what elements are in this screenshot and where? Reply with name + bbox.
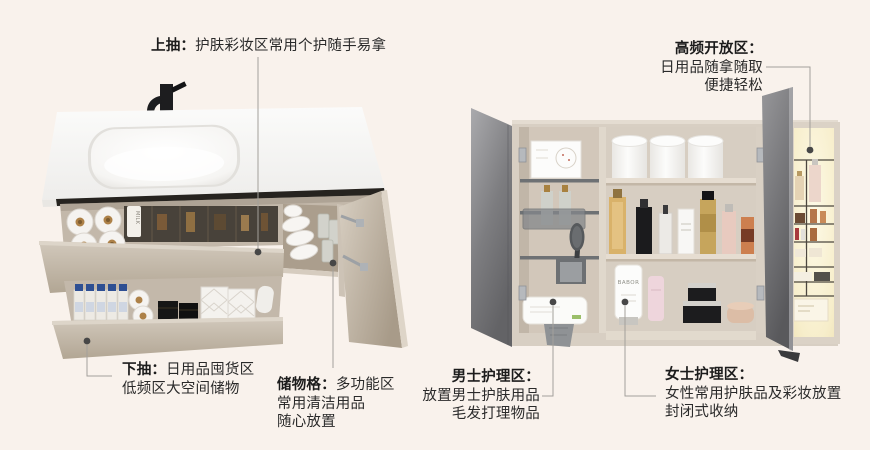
callout-storage-grid-label: 储物格： (277, 377, 336, 393)
babor-brand-label: BABOR (618, 280, 640, 286)
towel-holder (556, 258, 586, 284)
open-niche (788, 122, 840, 344)
callout-top-drawer-desc: 护肤彩妆区常用个护随手易拿 (195, 38, 386, 54)
milk-bottle-label: MILK (134, 211, 140, 225)
callout-top-drawer-label: 上抽： (151, 38, 195, 54)
dot-mens-zone (550, 299, 557, 306)
black-jars (683, 283, 721, 323)
callout-bottom-drawer-desc: 日用品囤货区 (166, 362, 254, 378)
cosmetic-organizers: MILK (124, 206, 278, 242)
womens-section: BABOR (606, 127, 756, 340)
tissue-boxes (201, 287, 255, 322)
callout-open-zone: 高频开放区： 日用品随拿随取 便捷轻松 (660, 40, 763, 96)
callout-storage-grid-line3: 随心放置 (277, 413, 395, 432)
callout-womens-zone-label: 女士护理区： (665, 366, 841, 385)
callout-mens-zone-label: 男士护理区： (422, 368, 540, 387)
callout-storage-grid: 储物格：多功能区 常用清洁用品 随心放置 (277, 376, 395, 432)
left-mirror-door (471, 108, 512, 347)
callout-mens-zone-line2: 毛发打理物品 (422, 405, 540, 424)
detergent-bottles (74, 284, 128, 320)
callout-womens-zone-line2: 封闭式收纳 (665, 403, 841, 422)
callout-womens-zone: 女士护理区： 女性常用护肤品及彩妆放置 封闭式收纳 (665, 366, 841, 422)
callout-womens-zone-line1: 女性常用护肤品及彩妆放置 (665, 385, 841, 404)
callout-open-zone-line2: 便捷轻松 (660, 77, 763, 96)
callout-top-drawer: 上抽：护肤彩妆区常用个护随手易拿 (151, 37, 386, 56)
dot-top-drawer (255, 249, 262, 256)
dot-bottom-drawer (84, 338, 91, 345)
callout-storage-grid-desc: 多功能区 (336, 377, 395, 393)
callout-open-zone-label: 高频开放区： (660, 40, 763, 59)
callout-bottom-drawer-line2: 低频区大空间储物 (122, 380, 254, 399)
callout-mens-zone-line1: 放置男士护肤用品 (422, 387, 540, 406)
white-canisters (612, 136, 723, 179)
dot-storage-grid (330, 260, 337, 267)
mirror-cabinet-illustration: BABOR (471, 87, 840, 362)
callout-mens-zone: 男士护理区： 放置男士护肤用品 毛发打理物品 (422, 368, 540, 424)
powder-jar (727, 302, 754, 323)
callout-open-zone-line1: 日用品随拿随取 (660, 59, 763, 78)
perfume-card (531, 141, 581, 178)
callout-storage-grid-line2: 常用清洁用品 (277, 395, 395, 414)
dot-open-zone (807, 147, 814, 154)
vanity-illustration: MILK (39, 81, 408, 359)
sink-basin (87, 124, 241, 190)
babor-tube: BABOR (615, 265, 642, 325)
promo-infographic: MILK (0, 0, 870, 450)
callout-bottom-drawer-label: 下抽： (122, 362, 166, 378)
vanity-side-door (339, 190, 408, 348)
callout-bottom-drawer: 下抽：日用品囤货区 低频区大空间储物 (122, 361, 254, 398)
dot-womens-zone (622, 299, 629, 306)
side-compartment (281, 204, 345, 297)
mens-section (519, 127, 599, 347)
